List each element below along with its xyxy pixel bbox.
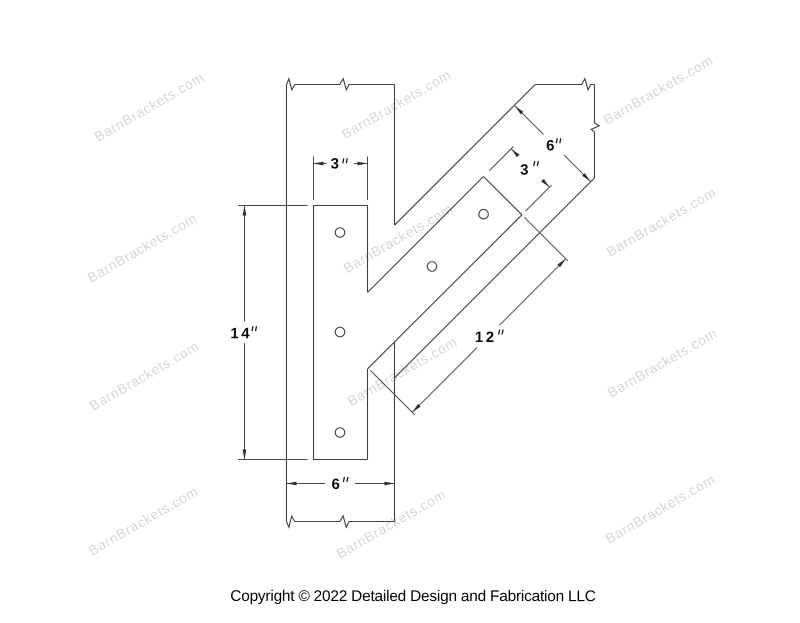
svg-text:6: 6 [331,476,339,493]
svg-text:3: 3 [331,155,339,172]
svg-text:12: 12 [475,329,497,346]
svg-text:6: 6 [546,137,554,154]
svg-text:Copyright © 2022 Detailed Desi: Copyright © 2022 Detailed Design and Fab… [230,588,595,605]
svg-text:14: 14 [230,325,252,342]
svg-text:3: 3 [520,162,528,179]
